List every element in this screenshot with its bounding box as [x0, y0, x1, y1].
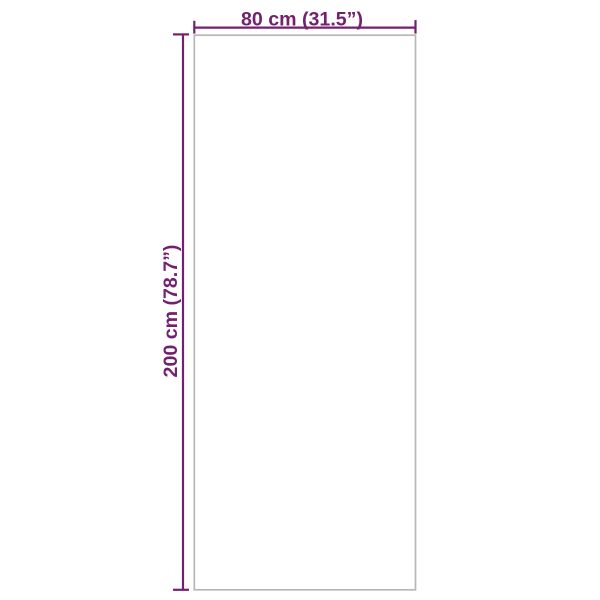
svg-text:80 cm (31.5”): 80 cm (31.5”)	[241, 8, 363, 30]
svg-text:200 cm (78.7”): 200 cm (78.7”)	[160, 245, 182, 378]
